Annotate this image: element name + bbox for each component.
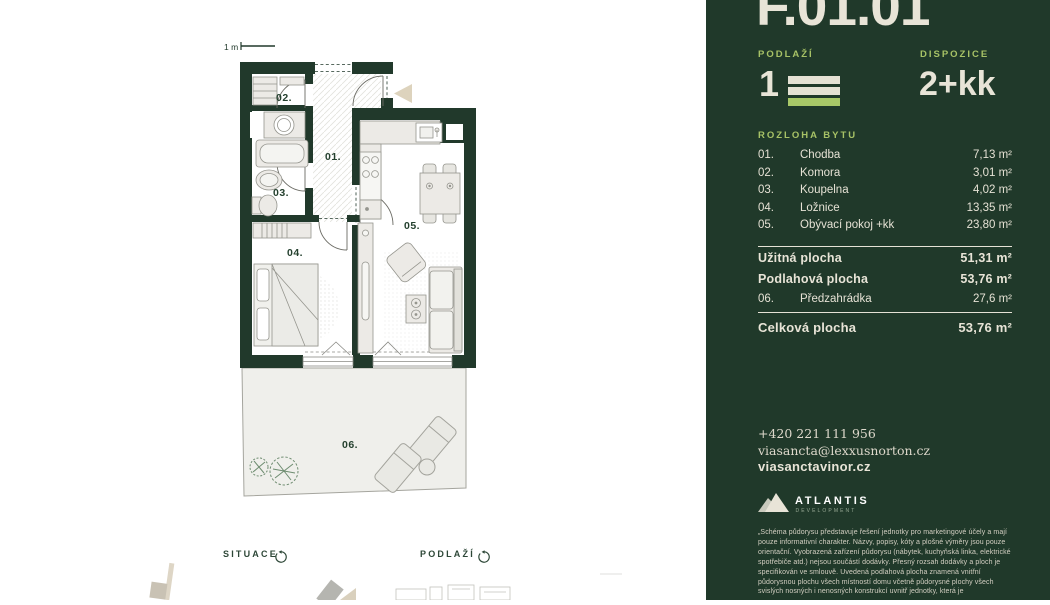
rotate-icon[interactable] xyxy=(274,550,288,564)
room-name: Ložnice xyxy=(800,202,967,214)
garden-area-row: 06. Předzahrádka 27,6 m² xyxy=(758,293,1012,311)
scale-label: 1 m xyxy=(224,42,238,52)
contact-phone[interactable]: +420 221 111 956 xyxy=(758,426,930,443)
logo-subtitle: DEVELOPMENT xyxy=(796,508,857,514)
floor-plan-drawing: 1 m xyxy=(0,0,706,600)
room-area: 27,6 m² xyxy=(973,293,1012,305)
room-area-row: 02. Komora 3,01 m² xyxy=(758,167,1012,185)
room-number: 06. xyxy=(758,293,800,305)
room-number: 04. xyxy=(758,202,800,214)
footer-thumbnails xyxy=(149,561,622,600)
room-label-03: 03. xyxy=(273,187,289,199)
scale-bar: 1 m xyxy=(224,42,275,52)
room-number: 05. xyxy=(758,219,800,231)
divider xyxy=(758,312,1012,313)
room-label-02: 02. xyxy=(276,92,292,104)
room-area-list: 01. Chodba 7,13 m² 02. Komora 3,01 m² 03… xyxy=(758,149,1012,237)
disclaimer-text: „Schéma půdorysu představuje řešení jedn… xyxy=(758,528,1016,597)
contact-website[interactable]: viasanctavinor.cz xyxy=(758,459,930,476)
usable-area-value: 51,31 m² xyxy=(960,251,1012,265)
room-area-row: 05. Obývací pokoj +kk 23,80 m² xyxy=(758,219,1012,237)
usable-area-row: Užitná plocha 51,31 m² xyxy=(758,251,1012,265)
room-area: 4,02 m² xyxy=(973,184,1012,196)
floor-area-label: Podlahová plocha xyxy=(758,272,868,286)
garden-area xyxy=(242,368,466,496)
area-table-heading: ROZLOHA BYTU xyxy=(758,130,857,141)
room-area: 23,80 m² xyxy=(967,219,1012,231)
atlantis-logo: ATLANTIS DEVELOPMENT xyxy=(758,489,928,515)
room-name: Chodba xyxy=(800,149,973,161)
total-area-label: Celková plocha xyxy=(758,320,856,335)
room-number: 01. xyxy=(758,149,800,161)
total-area-row: Celková plocha 53,76 m² xyxy=(758,320,1012,335)
room-name: Předzahrádka xyxy=(800,293,973,305)
room-area: 7,13 m² xyxy=(973,149,1012,161)
wall-niche xyxy=(250,112,263,138)
floor-label: PODLAŽÍ xyxy=(758,49,814,60)
info-panel: F.01.01 PODLAŽÍ 1 DISPOZICE 2+kk ROZLOHA… xyxy=(706,0,1050,600)
room-label-01: 01. xyxy=(325,151,341,163)
floor-plan: 1 m xyxy=(0,0,706,600)
wall-niche xyxy=(446,124,463,140)
room-area-row: 04. Ložnice 13,35 m² xyxy=(758,202,1012,220)
page: { "unit_code": "F.01.01", "floor": { "la… xyxy=(0,0,1050,600)
room-label-04: 04. xyxy=(287,247,303,259)
room-name: Komora xyxy=(800,167,973,179)
room-area: 13,35 m² xyxy=(967,202,1012,214)
entrance-arrow-icon xyxy=(394,84,412,103)
contact-block: +420 221 111 956 viasancta@lexxusnorton.… xyxy=(758,426,930,476)
usable-area-label: Užitná plocha xyxy=(758,251,842,265)
contact-email[interactable]: viasancta@lexxusnorton.cz xyxy=(758,443,930,460)
room-label-05: 05. xyxy=(404,220,420,232)
divider xyxy=(758,246,1012,247)
disposition-value: 2+kk xyxy=(919,67,996,101)
rotate-icon[interactable] xyxy=(477,550,491,564)
room-area-row: 03. Koupelna 4,02 m² xyxy=(758,184,1012,202)
room-number: 02. xyxy=(758,167,800,179)
floor-area-row: Podlahová plocha 53,76 m² xyxy=(758,272,1012,286)
total-area-value: 53,76 m² xyxy=(958,320,1012,335)
room-label-06: 06. xyxy=(342,439,358,451)
unit-code: F.01.01 xyxy=(756,0,929,34)
floor-area-value: 53,76 m² xyxy=(960,272,1012,286)
floor-value: 1 xyxy=(759,66,779,102)
room-name: Obývací pokoj +kk xyxy=(800,219,967,231)
floor-lines-icon xyxy=(788,76,840,107)
logo-name: ATLANTIS xyxy=(795,495,869,507)
disposition-label: DISPOZICE xyxy=(920,49,989,60)
podlazi-label[interactable]: PODLAŽÍ xyxy=(420,549,475,559)
situace-label[interactable]: SITUACE xyxy=(223,549,278,559)
room-area: 3,01 m² xyxy=(973,167,1012,179)
room-area-row: 01. Chodba 7,13 m² xyxy=(758,149,1012,167)
room-name: Koupelna xyxy=(800,184,973,196)
room-number: 03. xyxy=(758,184,800,196)
